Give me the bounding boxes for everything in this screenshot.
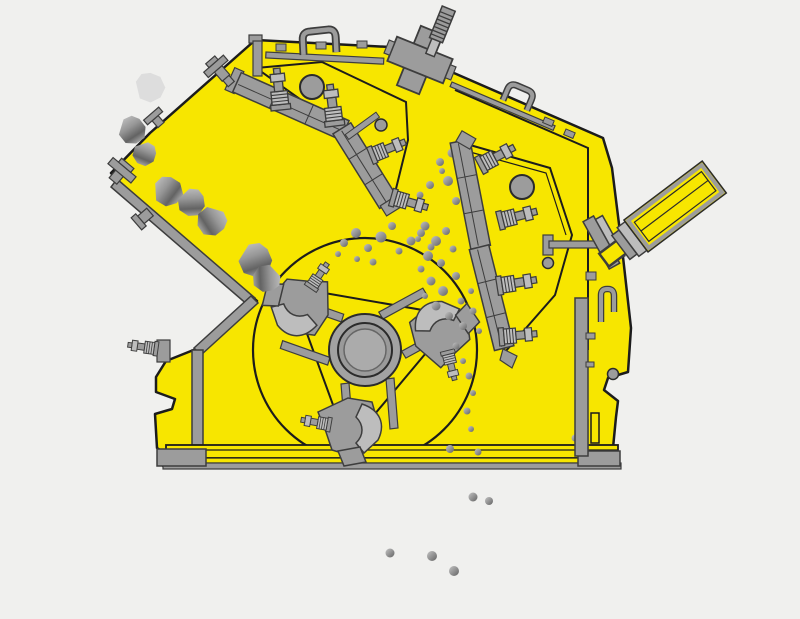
crushed-particle bbox=[468, 426, 474, 432]
crushed-particle bbox=[446, 445, 454, 453]
crushed-particle bbox=[485, 497, 493, 505]
crushed-particle bbox=[476, 328, 482, 334]
crushed-particle bbox=[453, 343, 460, 350]
side-wall-liner bbox=[575, 298, 588, 456]
crushed-particle bbox=[418, 266, 425, 273]
crushed-particle bbox=[442, 227, 450, 235]
crushed-particle bbox=[427, 277, 436, 286]
crushed-particle bbox=[460, 358, 466, 364]
inspection-hole bbox=[608, 369, 619, 380]
crushed-particle bbox=[449, 566, 459, 576]
leg-liner-post bbox=[192, 350, 203, 453]
crushed-particle bbox=[370, 259, 377, 266]
deck-tab bbox=[357, 41, 367, 48]
crushed-particle bbox=[376, 232, 387, 243]
crushed-particle bbox=[364, 244, 372, 252]
apron-pivot-hole bbox=[510, 175, 534, 199]
crushed-particle bbox=[459, 322, 467, 330]
crushed-particle bbox=[415, 236, 421, 242]
deck-tab bbox=[316, 42, 326, 49]
diagram-canvas bbox=[0, 0, 800, 619]
crushed-particle bbox=[464, 408, 471, 415]
crushed-particle bbox=[431, 236, 441, 246]
crushed-particle bbox=[443, 176, 453, 186]
crushed-particle bbox=[475, 449, 482, 456]
crushed-particle bbox=[439, 168, 445, 174]
crushed-particle bbox=[422, 293, 428, 299]
crushed-particle bbox=[445, 312, 453, 320]
apron-pivot-hole bbox=[300, 75, 324, 99]
crushed-particle bbox=[340, 239, 348, 247]
crushed-particle bbox=[470, 390, 476, 396]
crushed-particle bbox=[423, 251, 433, 261]
crushed-particle bbox=[421, 222, 430, 231]
support-foot-left bbox=[157, 449, 206, 466]
rotor-hub bbox=[329, 314, 401, 386]
crushed-particle bbox=[469, 493, 478, 502]
impact-crusher-diagram bbox=[0, 0, 800, 619]
crushed-particle bbox=[468, 288, 474, 294]
crushed-particle bbox=[427, 551, 437, 561]
crushed-particle bbox=[437, 259, 445, 267]
crushed-particle bbox=[432, 302, 441, 311]
crushed-particle bbox=[436, 158, 444, 166]
crushed-particle bbox=[407, 237, 416, 246]
crushed-particle bbox=[426, 181, 434, 189]
wall-tab bbox=[586, 362, 594, 367]
crushed-particle bbox=[452, 197, 460, 205]
base-skid bbox=[163, 463, 621, 469]
crushed-particle bbox=[351, 228, 361, 238]
crushed-particle bbox=[388, 222, 396, 230]
crushed-particle bbox=[438, 286, 448, 296]
crushed-particle bbox=[354, 256, 360, 262]
crushed-particle bbox=[386, 549, 395, 558]
crushed-particle bbox=[466, 373, 473, 380]
crushed-particle bbox=[335, 251, 341, 257]
apron-small-hole bbox=[375, 119, 387, 131]
wall-tab bbox=[586, 333, 595, 339]
crushed-particle bbox=[396, 248, 403, 255]
wall-clip bbox=[586, 272, 596, 280]
apron-small-hole bbox=[543, 258, 554, 269]
crushed-particle bbox=[450, 246, 457, 253]
crushed-particle bbox=[470, 308, 477, 315]
crushed-particle bbox=[452, 272, 460, 280]
deck-tab bbox=[276, 44, 286, 51]
feed-rock bbox=[133, 71, 168, 105]
crushed-particle bbox=[458, 298, 465, 305]
